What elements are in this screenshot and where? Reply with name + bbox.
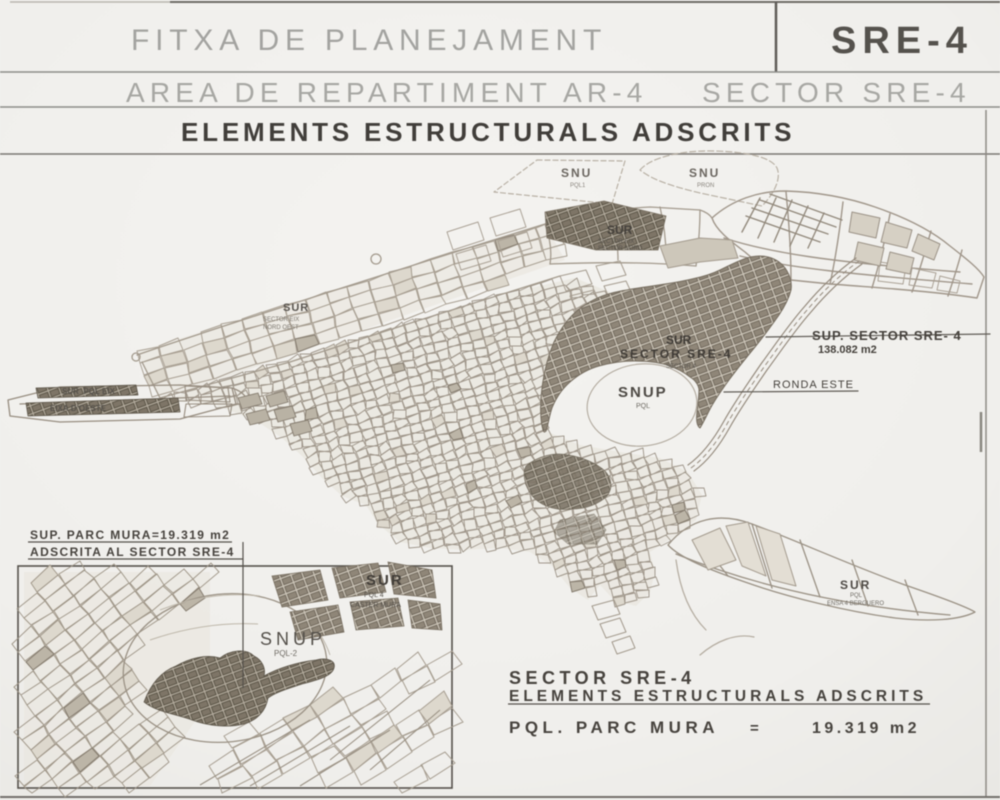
- svg-text:SNUP: SNUP: [260, 629, 326, 649]
- svg-text:PRON: PRON: [697, 183, 714, 189]
- svg-text:PQL: PQL: [636, 403, 650, 410]
- svg-text:19.319 m2: 19.319 m2: [812, 720, 920, 737]
- svg-text:RONDA ESTE: RONDA ESTE: [773, 379, 854, 391]
- svg-text:SNU: SNU: [689, 166, 720, 180]
- svg-text:SECTOR SRE-4: SECTOR SRE-4: [509, 668, 696, 688]
- svg-text:SNUP: SNUP: [618, 384, 668, 401]
- svg-text:PQL. PARC MURA: PQL. PARC MURA: [509, 718, 719, 737]
- svg-text:SUP. PARC MURA=19.319 m2: SUP. PARC MURA=19.319 m2: [30, 528, 230, 542]
- svg-text:SECTOR SRE-4: SECTOR SRE-4: [702, 77, 971, 108]
- svg-text:ADSCRITA AL SECTOR SRE-4: ADSCRITA AL SECTOR SRE-4: [30, 545, 235, 559]
- svg-text:SECTOR NORD: SECTOR NORD: [598, 246, 643, 252]
- svg-text:CASTER MURA: CASTER MURA: [350, 602, 401, 609]
- svg-text:SUR: SUR: [840, 578, 871, 592]
- svg-text:ELEMENTS ESTRUCTURALS ADSCRITS: ELEMENTS ESTRUCTURALS ADSCRITS: [509, 688, 927, 705]
- svg-text:SUR: SUR: [283, 302, 309, 314]
- svg-text:PQL 4: PQL 4: [364, 592, 384, 599]
- svg-text:EIXA D’OESTE: EIXA D’OESTE: [50, 404, 107, 413]
- svg-text:SECTOR EIX: SECTOR EIX: [598, 239, 634, 245]
- svg-text:FITXA DE PLANEJAMENT: FITXA DE PLANEJAMENT: [131, 24, 607, 57]
- svg-text:SECTOR EIX: SECTOR EIX: [263, 317, 299, 323]
- svg-text:PQL: PQL: [850, 593, 863, 599]
- svg-text:ELEMENTS ESTRUCTURALS ADSCRITS: ELEMENTS ESTRUCTURALS ADSCRITS: [181, 117, 795, 147]
- svg-text:SUR: SUR: [366, 572, 404, 589]
- svg-text:SUR: SUR: [666, 333, 692, 347]
- svg-text:SECTOR SRE-4: SECTOR SRE-4: [620, 347, 732, 361]
- svg-text:SNU: SNU: [561, 166, 592, 180]
- svg-text:PQL1: PQL1: [570, 183, 586, 189]
- svg-text:SUP. SECTOR SRE- 4: SUP. SECTOR SRE- 4: [812, 328, 962, 343]
- svg-text:SRE-4: SRE-4: [831, 20, 973, 62]
- svg-text:SUR PQL EIX: SUR PQL EIX: [62, 387, 116, 396]
- svg-text:ENSA 4 BERGUERO: ENSA 4 BERGUERO: [827, 601, 884, 607]
- svg-text:=: =: [750, 720, 759, 737]
- svg-text:SUR: SUR: [607, 223, 633, 237]
- svg-text:138.082 m2: 138.082 m2: [818, 344, 877, 356]
- svg-text:SECTOR 4: SECTOR 4: [666, 364, 697, 370]
- svg-text:AREA DE REPARTIMENT AR-4: AREA DE REPARTIMENT AR-4: [126, 77, 648, 108]
- svg-text:PQL-2: PQL-2: [274, 649, 298, 658]
- svg-text:NORD OEST: NORD OEST: [263, 325, 299, 331]
